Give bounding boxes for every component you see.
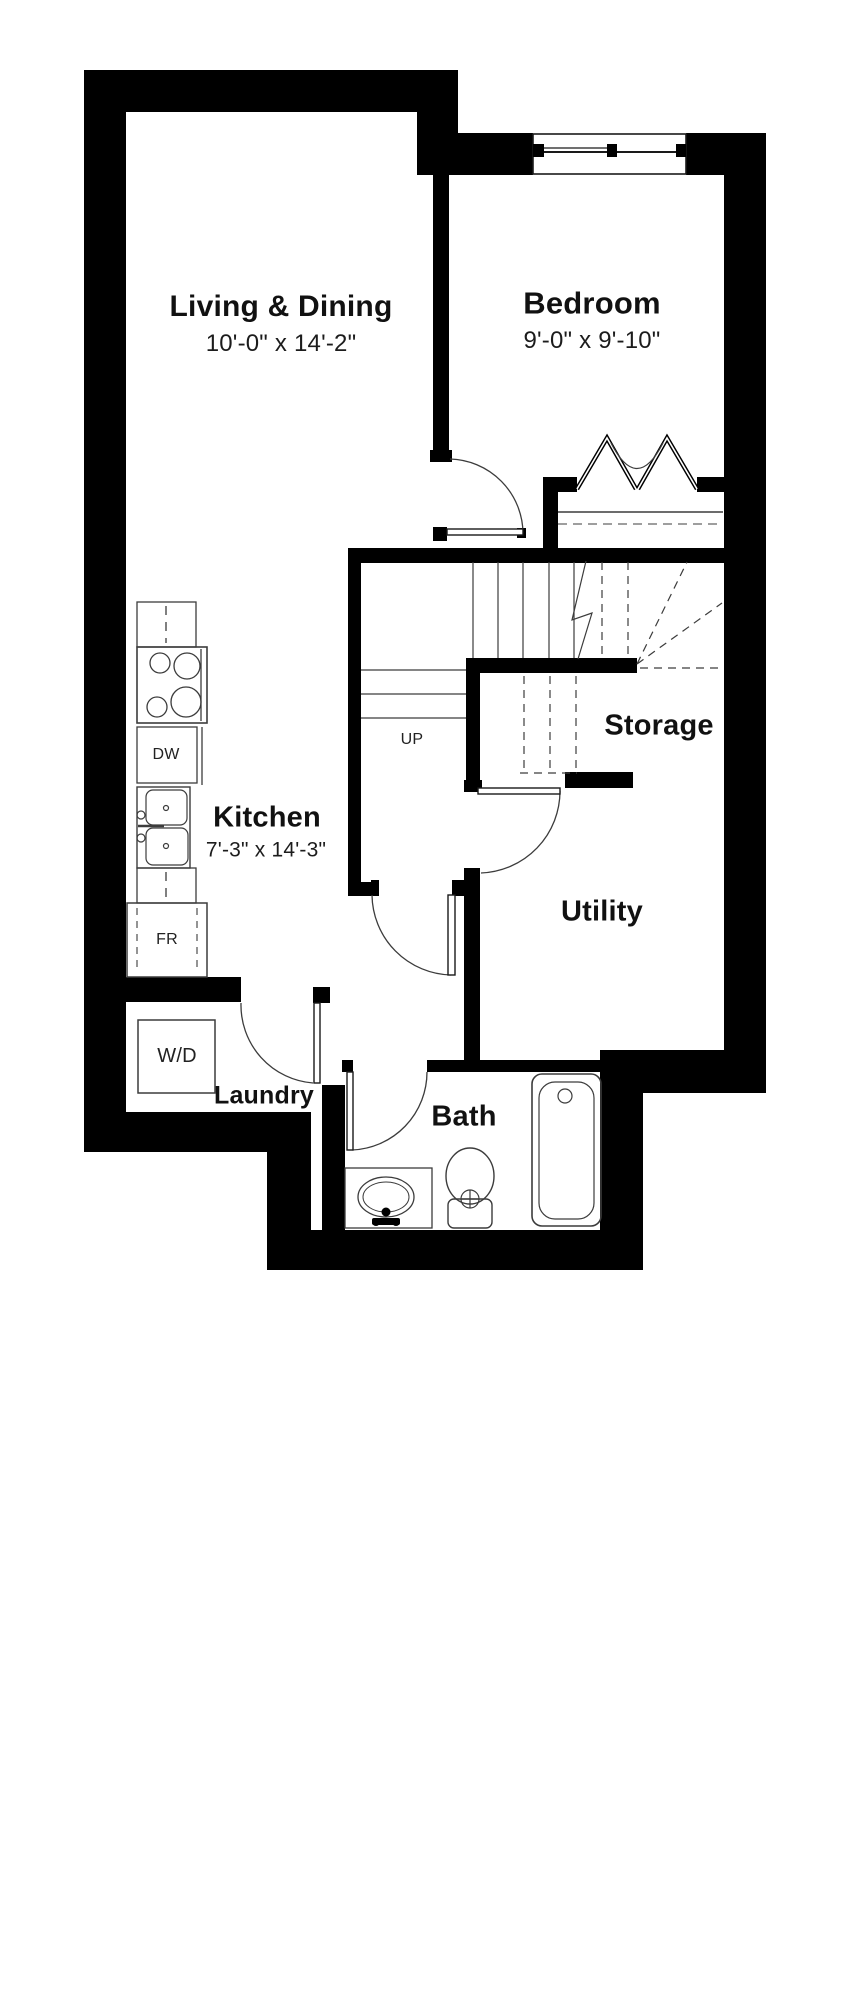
room-label-bedroom: Bedroom <box>523 288 660 319</box>
room-label-living: Living & Dining <box>170 292 393 322</box>
laundry-door <box>241 1003 320 1083</box>
toilet <box>446 1148 494 1228</box>
bedroom-entry-door <box>447 459 523 535</box>
washer-dryer-label: W/D <box>157 1046 196 1066</box>
storage-door <box>478 788 560 873</box>
utility-door <box>372 895 455 975</box>
stairs-up-label: UP <box>401 732 424 748</box>
room-dims-kitchen: 7'-3" x 14'-3" <box>206 840 326 861</box>
room-label-laundry: Laundry <box>214 1084 314 1109</box>
room-label-storage: Storage <box>604 712 713 741</box>
room-label-kitchen: Kitchen <box>213 804 321 833</box>
bedroom-window <box>533 134 686 174</box>
range-stove <box>137 647 207 723</box>
floor-plan-drawing <box>0 0 850 1300</box>
room-label-bath: Bath <box>431 1103 496 1132</box>
room-dims-living: 10'-0" x 14'-2" <box>206 332 357 356</box>
room-dims-bedroom: 9'-0" x 9'-10" <box>523 329 660 353</box>
bathtub <box>532 1074 601 1226</box>
room-label-utility: Utility <box>561 898 643 927</box>
bath-door <box>347 1072 427 1150</box>
dishwasher-label: DW <box>152 747 179 763</box>
floor-plan-page: Living & Dining 10'-0" x 14'-2" Bedroom … <box>0 0 850 2000</box>
fridge-label: FR <box>156 932 178 948</box>
kitchen-sink <box>137 787 190 868</box>
bath-vanity-sink <box>345 1168 432 1228</box>
